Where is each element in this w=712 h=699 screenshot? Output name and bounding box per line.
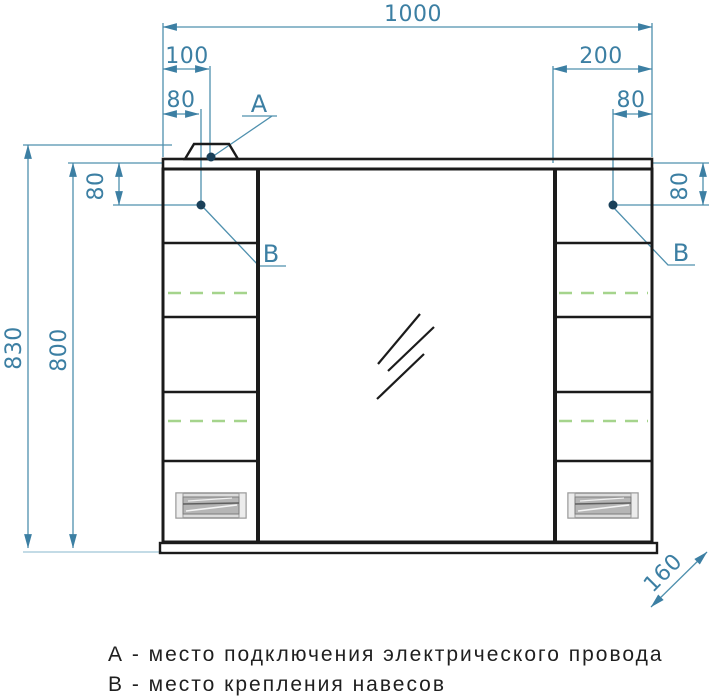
dim-top-right-offset: 200 xyxy=(579,44,623,69)
callout-a-label: А xyxy=(251,90,268,118)
handle-right-cap-l xyxy=(568,493,575,518)
legend-line-a: А - место подключения электрического про… xyxy=(108,643,664,666)
dim-total-height: 830 xyxy=(2,326,27,370)
extension-lines xyxy=(23,23,709,552)
dim-side-hole-left: 80 xyxy=(84,172,109,201)
mirror-hatch-line-2 xyxy=(388,327,434,371)
handle-left-cap-l xyxy=(176,493,183,518)
handle-left-cap-r xyxy=(239,493,246,518)
handle-left xyxy=(176,493,246,518)
handle-right-cap-r xyxy=(631,493,638,518)
handle-left-groove xyxy=(183,503,239,504)
mirror-glass-hatch xyxy=(377,314,434,399)
callout-b-left-label: В xyxy=(263,240,279,268)
dim-total-width: 1000 xyxy=(384,2,442,27)
cabinet-body-outline xyxy=(163,169,652,542)
legend: А - место подключения электрического про… xyxy=(108,643,664,696)
point-a-dot xyxy=(207,153,216,162)
dim-body-height: 800 xyxy=(47,328,72,372)
handle-right xyxy=(568,493,638,518)
mirror-hatch-line-3 xyxy=(377,354,424,399)
point-b-left-dot xyxy=(197,201,206,210)
technical-drawing-page: 1000 100 80 200 80 830 800 80 80 160 А В… xyxy=(0,0,712,699)
dim-top-left-hole: 80 xyxy=(167,88,196,113)
cabinet-structure xyxy=(160,144,657,553)
legend-line-b: В - место крепления навесов xyxy=(108,673,446,696)
mirror-cabinet-drawing: 1000 100 80 200 80 830 800 80 80 160 А В… xyxy=(0,0,712,699)
callout-b-right-label: В xyxy=(673,239,689,267)
dim-top-right-hole: 80 xyxy=(617,88,646,113)
mirror-hatch-line-1 xyxy=(378,314,420,364)
handle-right-groove xyxy=(575,503,631,504)
dim-depth: 160 xyxy=(639,549,687,597)
dim-side-hole-right: 80 xyxy=(668,172,693,201)
point-b-right-dot xyxy=(609,201,618,210)
dim-top-left-offset: 100 xyxy=(165,44,209,69)
bottom-panel xyxy=(160,543,657,553)
leader-a xyxy=(212,116,277,157)
